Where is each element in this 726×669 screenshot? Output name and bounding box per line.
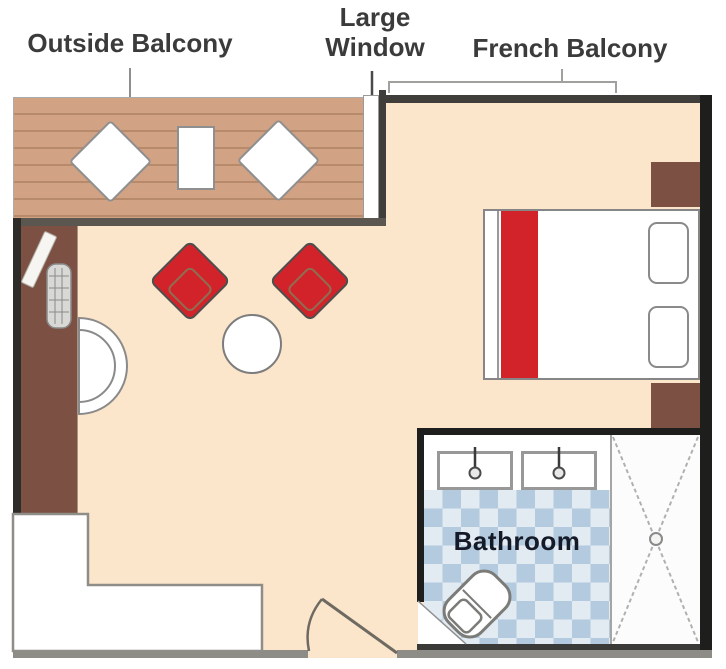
corridor-area	[13, 514, 262, 651]
faucet-icon	[554, 447, 565, 479]
drain-icon	[650, 533, 662, 545]
side-table-icon	[79, 318, 127, 414]
entry-door-swing-arc	[308, 599, 322, 651]
shelf-unit-icon	[47, 264, 71, 328]
french-balcony-bracket	[389, 82, 616, 93]
plan-overlay	[0, 0, 726, 669]
floor-plan: Bathroom Outside Balcony Large Window Fr…	[0, 0, 726, 669]
faucet-icon	[470, 447, 481, 479]
entry-door-leaf	[322, 599, 397, 653]
